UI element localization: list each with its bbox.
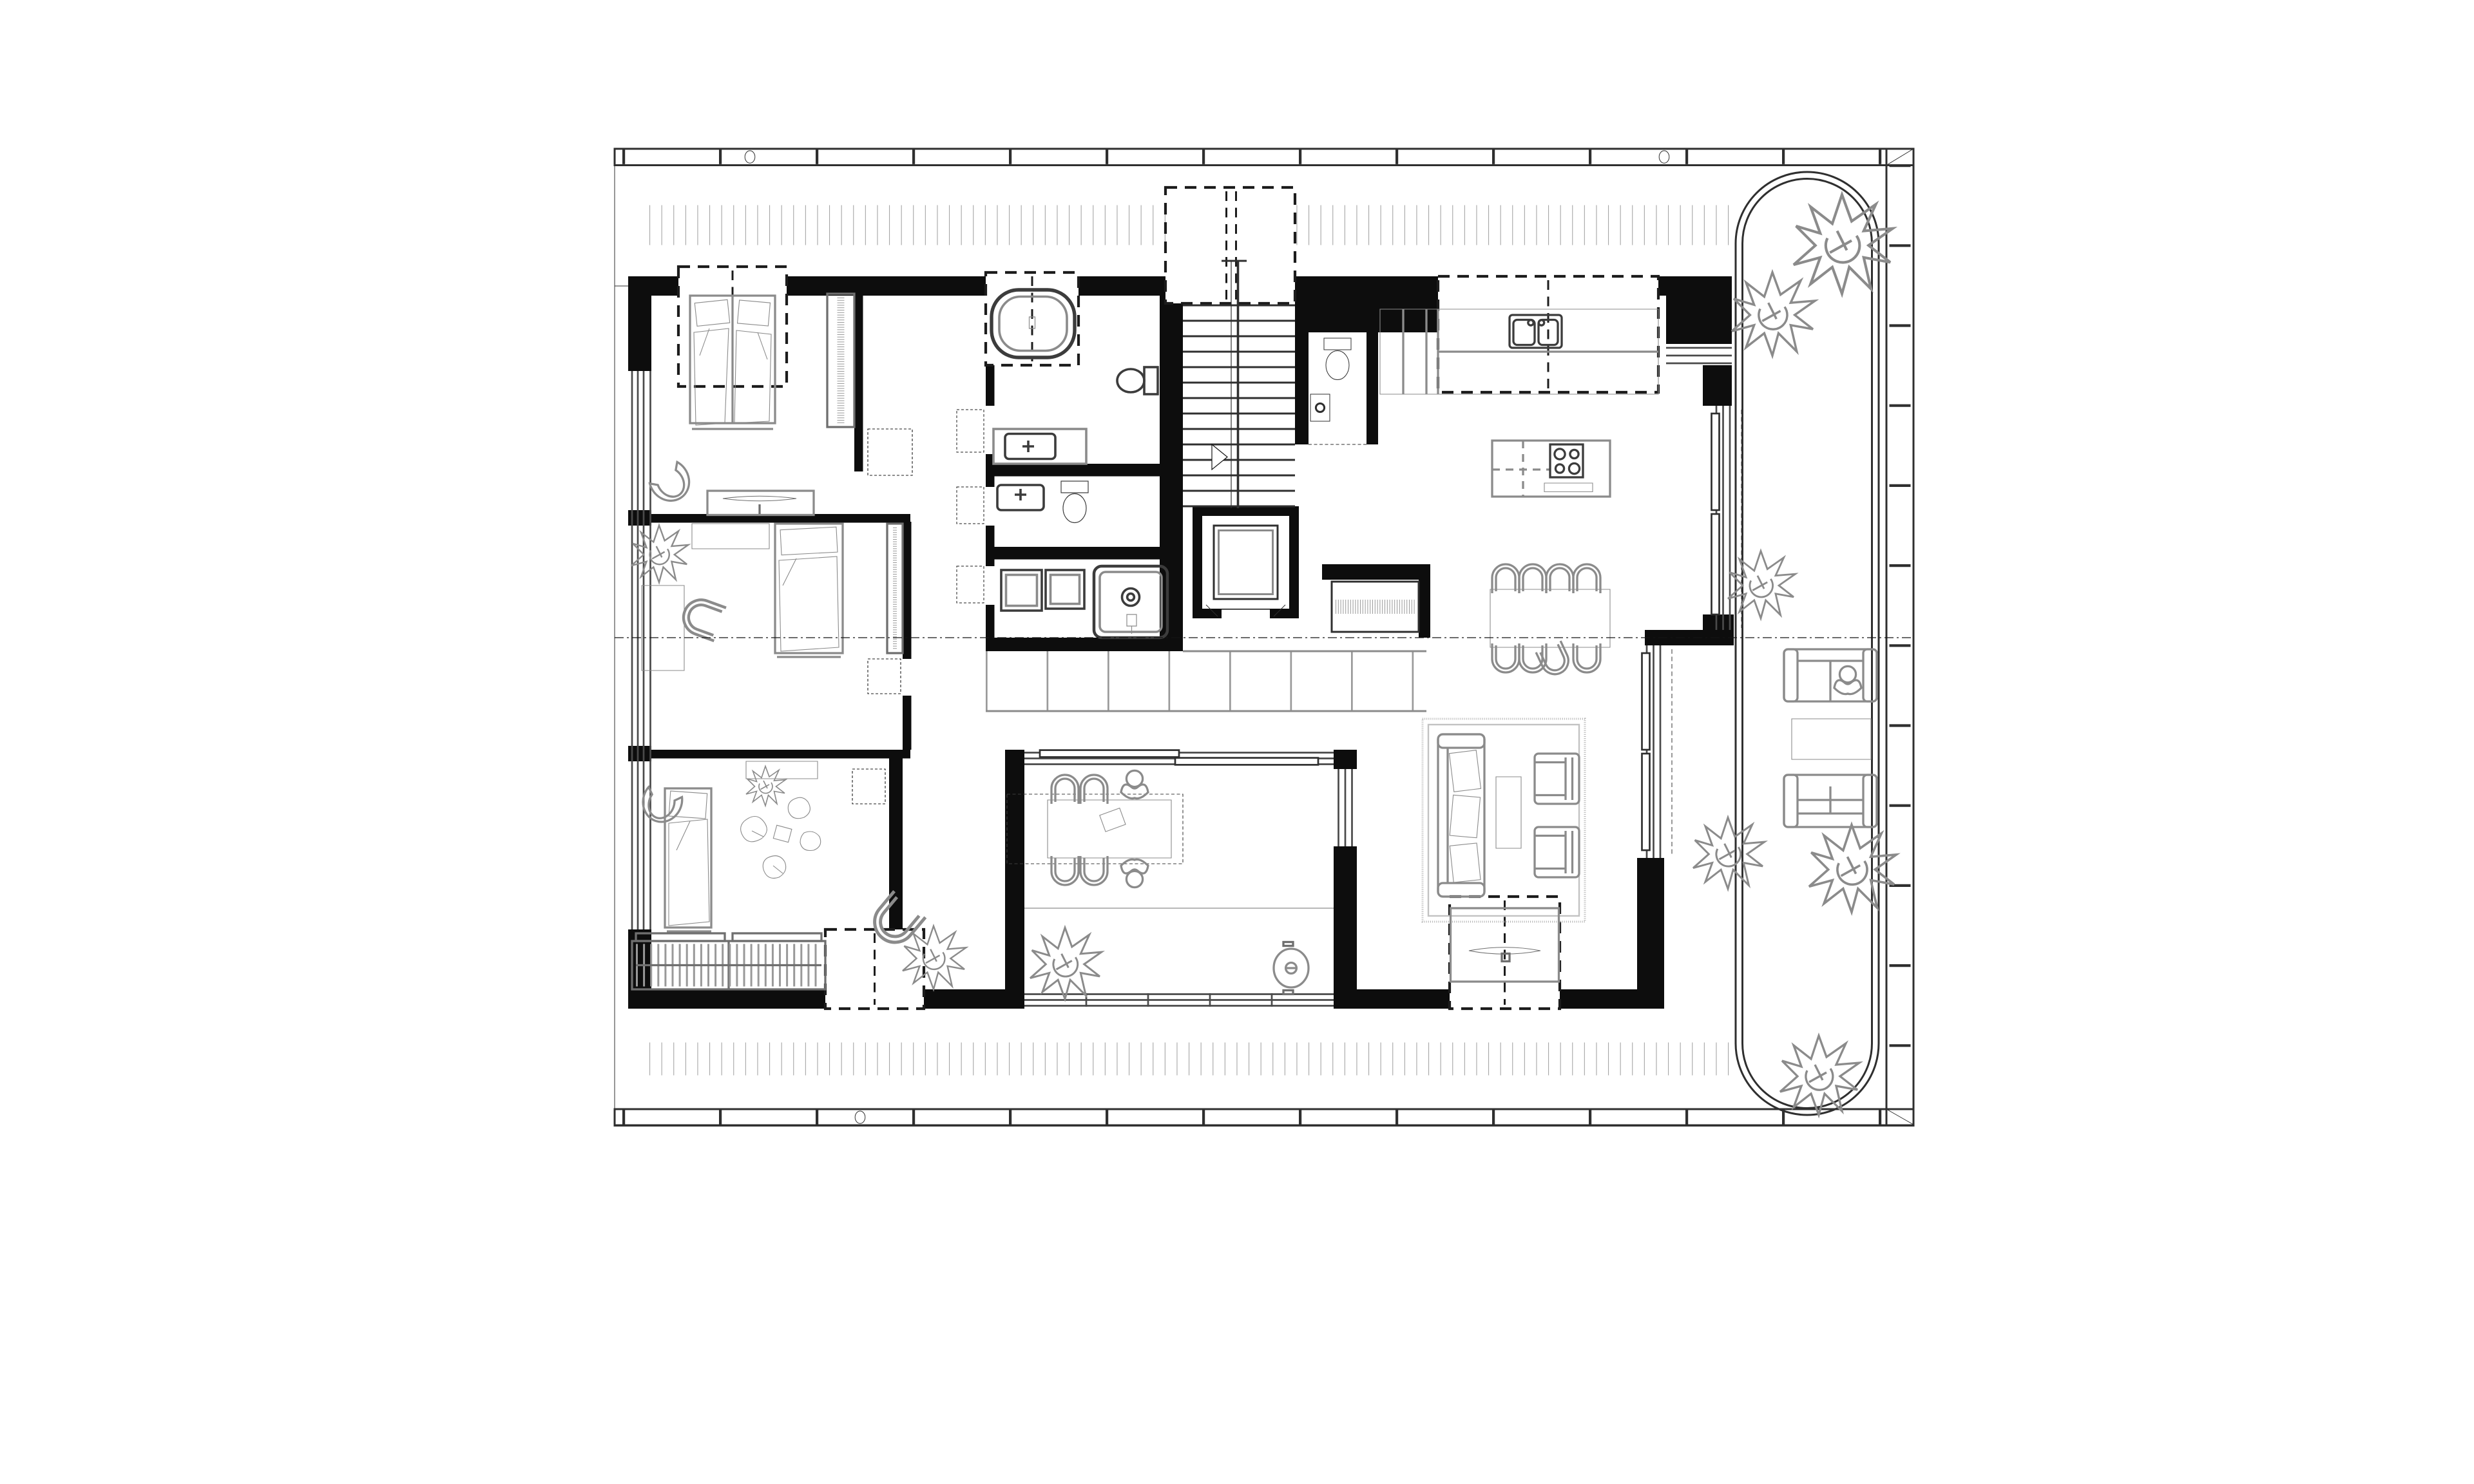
shower	[1094, 566, 1167, 638]
lower-east-sliding-doors	[1642, 645, 1673, 858]
bath-toilet	[1117, 367, 1158, 394]
sofa-cushion	[1450, 843, 1481, 882]
bedroom1-wardrobe	[827, 294, 854, 427]
fascia-circle-detail-2	[1659, 151, 1669, 163]
dining-chair	[1546, 564, 1573, 593]
desk-chair	[678, 595, 726, 641]
bedroom3-plant	[746, 766, 786, 806]
fascia-miter-bottom	[1886, 1109, 1913, 1125]
duvet	[669, 819, 709, 926]
bedroom2-door-swing	[868, 659, 901, 694]
fascia-miter-top	[1886, 149, 1913, 166]
loggia-chair	[1051, 775, 1079, 804]
bedroom3-wall	[889, 757, 903, 808]
fascia-circle-detail-1	[745, 151, 755, 163]
monitor	[723, 496, 796, 501]
fascia-circle-detail-3	[855, 1111, 865, 1123]
bath-door-swing	[957, 410, 984, 452]
laundry	[1001, 570, 1084, 611]
floor-plan-drawing	[0, 0, 2474, 1484]
partition-bed2-bed3	[630, 750, 910, 759]
ensuite-toilet-bowl	[1063, 494, 1086, 523]
armchair-2	[1535, 827, 1579, 877]
child-figure	[800, 832, 821, 851]
stairwell-opening	[1165, 187, 1295, 303]
loggia-left-wall	[1005, 750, 1024, 993]
wc-toilet-bowl	[1326, 351, 1349, 380]
bedroom2-wall	[903, 522, 912, 659]
outdoor-coffee-table	[1792, 719, 1871, 759]
dining-chair	[1492, 643, 1519, 672]
stair-wall	[1160, 276, 1183, 638]
sofa-cushion	[1450, 795, 1480, 837]
coat-closet	[1332, 582, 1419, 632]
terrace-plant-5	[1809, 825, 1896, 912]
dining-table	[1490, 589, 1610, 647]
laundry-door-swing	[957, 566, 984, 603]
loggia-chair	[1080, 775, 1108, 804]
dining-chair	[1492, 564, 1519, 593]
single-bed-2	[775, 524, 843, 657]
bath-wall-bottom	[986, 638, 1183, 651]
kitchen-upper-cabinets	[1438, 276, 1658, 392]
bedroom2-plant	[631, 526, 689, 583]
radiator	[632, 933, 825, 989]
wall-shelf	[692, 524, 769, 549]
bath-door-swings	[957, 410, 984, 603]
pillow	[780, 527, 838, 555]
entrance-arrow	[1212, 444, 1227, 470]
bottom-fascia-band	[615, 1109, 1913, 1126]
sofa	[1438, 734, 1484, 897]
kitchen-corner-window	[1666, 348, 1732, 363]
bedroom-2	[631, 524, 903, 694]
child-figure	[763, 856, 785, 879]
outdoor-sofa	[1784, 775, 1877, 827]
cooktop	[1550, 444, 1583, 477]
toy	[773, 825, 792, 842]
elevator	[1202, 516, 1289, 620]
dining-chair	[1573, 564, 1600, 593]
floor-plan-page	[0, 0, 2474, 1484]
outdoor-sofa-with-person	[1784, 649, 1877, 701]
bedroom1-desk	[707, 491, 814, 515]
loggia-chair	[1080, 856, 1108, 885]
wc-toilet-tank	[1324, 338, 1351, 350]
bedroom1-door-swing	[868, 429, 912, 475]
loggia-right-window	[1339, 769, 1352, 846]
top-fascia-band	[615, 149, 1913, 166]
terrace-plant-2	[1732, 272, 1815, 356]
wc	[1309, 338, 1366, 444]
wc-corner-sink	[1310, 394, 1330, 421]
coffee-table	[1496, 777, 1521, 848]
duvet	[779, 556, 839, 651]
loggia-chair	[1051, 856, 1079, 885]
wall-shelf	[746, 761, 818, 779]
child-figure	[741, 817, 767, 842]
kitchen-corner-wall	[1666, 276, 1732, 344]
bath-wall-2	[993, 547, 1183, 560]
bedroom2-desk	[642, 585, 684, 671]
paper-on-table	[1100, 808, 1126, 832]
loggia-table-extension-dashed	[1007, 794, 1183, 864]
bath-vanity	[993, 429, 1086, 464]
elevator-door-gap	[1222, 610, 1270, 620]
ensuite-toilet-tank	[1061, 481, 1088, 493]
kitchen-island	[1492, 441, 1610, 497]
extractor	[1544, 483, 1593, 492]
bath-wall-1	[993, 464, 1183, 477]
sofa-cushion	[1450, 750, 1481, 792]
bedroom2-wardrobe	[887, 524, 903, 653]
ensuite-door-swing	[957, 487, 984, 524]
bedroom1-armchair	[647, 461, 697, 508]
entry-floor-tiles	[986, 651, 1426, 711]
loggia-right-wall	[1334, 846, 1357, 989]
armchair-1	[1535, 754, 1579, 804]
round-basin	[1274, 942, 1309, 994]
loggia-top-sliding-doors	[1024, 750, 1334, 765]
right-fascia-band	[1886, 149, 1913, 1126]
loggia-plant	[1030, 927, 1102, 999]
bedroom1-wall	[854, 296, 863, 471]
bedroom3-door-swing	[852, 769, 885, 804]
loggia	[1007, 770, 1334, 999]
terrace-plant-3	[1728, 551, 1796, 618]
dining-chair	[1519, 564, 1546, 593]
person-on-sofa	[1834, 666, 1861, 694]
ensuite	[997, 481, 1088, 523]
dining-set	[1490, 564, 1610, 679]
rounded-glass-screen	[1736, 172, 1879, 1115]
left-facade-window	[632, 371, 651, 929]
dining-chair	[1573, 643, 1600, 672]
loggia-table	[1048, 800, 1171, 858]
children-figures	[741, 797, 821, 878]
terrace-plant-4	[1693, 817, 1765, 889]
child-figure	[788, 797, 810, 819]
